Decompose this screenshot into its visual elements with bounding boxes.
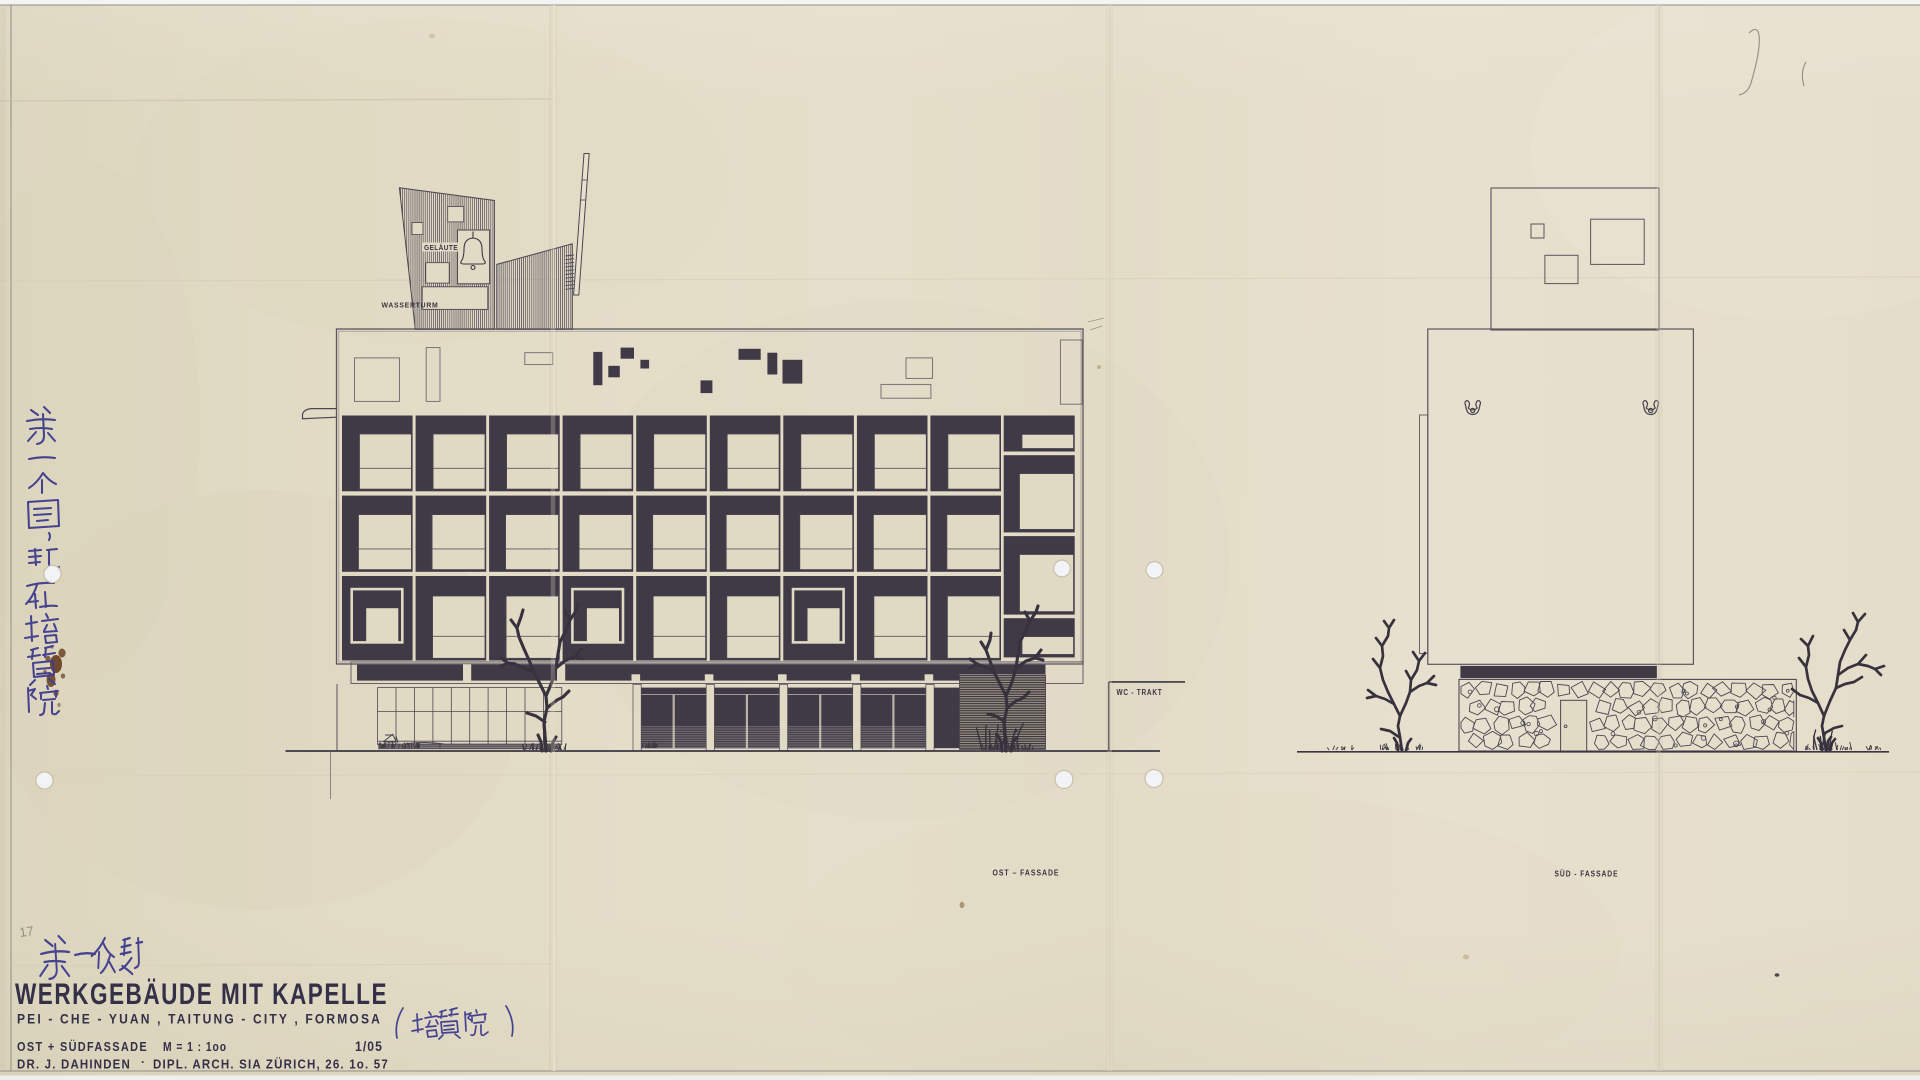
svg-text:PEI - CHE - YUAN , TAITUNG - C: PEI - CHE - YUAN , TAITUNG - CITY , FORM… [17, 1012, 382, 1027]
svg-text:1/05: 1/05 [355, 1039, 383, 1054]
svg-text:SÜD - FASSADE: SÜD - FASSADE [1555, 870, 1619, 879]
svg-text:DR. J. DAHINDEN: DR. J. DAHINDEN [17, 1058, 131, 1072]
svg-text:WERKGEBÄUDE MIT KAPELLE: WERKGEBÄUDE MIT KAPELLE [15, 978, 388, 1011]
svg-text:DIPL. ARCH. SIA ZÜRICH, 26. 1o: DIPL. ARCH. SIA ZÜRICH, 26. 1o. 57 [153, 1057, 389, 1072]
svg-text:·: · [141, 1055, 145, 1069]
svg-text:M = 1 : 1oo: M = 1 : 1oo [163, 1039, 227, 1054]
svg-text:GELÄUTE: GELÄUTE [424, 243, 458, 252]
svg-text:OST – FASSADE: OST – FASSADE [993, 869, 1060, 878]
svg-text:17: 17 [18, 923, 34, 940]
svg-text:WC - TRAKT: WC - TRAKT [1117, 688, 1163, 697]
svg-text:OST + SÜDFASSADE: OST + SÜDFASSADE [17, 1039, 148, 1054]
svg-text:WASSERTURM: WASSERTURM [382, 301, 439, 310]
